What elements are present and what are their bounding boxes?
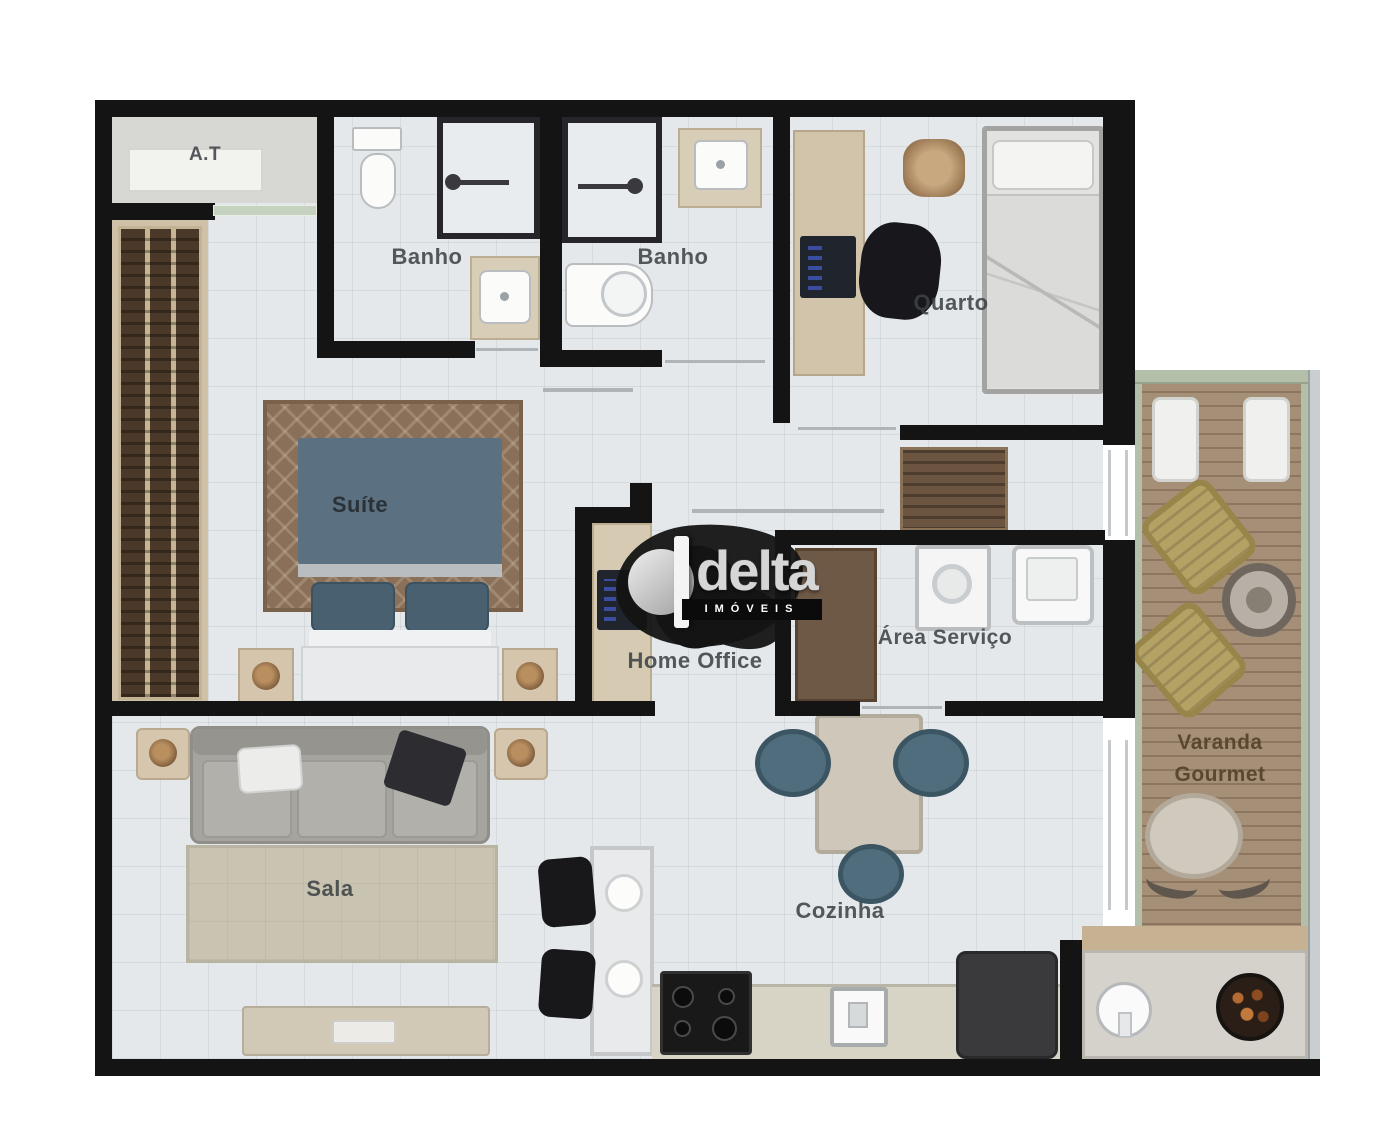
room-label-suite: Suíte	[285, 492, 435, 518]
stove-burner	[712, 1016, 737, 1041]
place-setting-icon	[605, 874, 643, 912]
varanda-top-band	[1135, 370, 1308, 384]
stove-burner	[718, 988, 735, 1005]
dining-chair	[893, 729, 969, 797]
wall-outer-top	[95, 100, 1135, 117]
plant-icon	[149, 739, 177, 767]
round-side-table-center	[1246, 587, 1272, 613]
barbecue-grill-icon	[1216, 973, 1284, 1041]
plant-icon	[252, 662, 280, 690]
shower-stall	[562, 117, 662, 243]
wardrobe	[118, 226, 202, 700]
bed-duvet	[301, 646, 499, 702]
door-quarto	[798, 427, 896, 430]
sofa-pillow	[236, 744, 303, 794]
wall-quarto-bottom	[900, 425, 1103, 440]
wall-servico-bottom-right	[945, 701, 1103, 716]
watermark-subtitle-strip: IMÓVEIS	[682, 599, 822, 620]
gourmet-bar-strip	[1082, 926, 1308, 950]
watermark-brand-text: delta	[696, 541, 856, 603]
sofa-cushion	[297, 760, 387, 838]
stove-burner	[672, 986, 694, 1008]
wall-suite-bottom	[95, 701, 655, 716]
tv-soundbar	[332, 1020, 396, 1044]
varanda-chair	[1152, 397, 1199, 482]
washing-machine-door	[932, 564, 972, 604]
kitchen-faucet-icon	[848, 1002, 868, 1028]
wall-outer-left	[95, 100, 112, 1076]
wall-banho1-bottom	[317, 341, 475, 358]
room-label-banho2: Banho	[598, 244, 748, 270]
door-suite	[543, 388, 633, 392]
wall-right-upper	[1103, 100, 1135, 445]
gourmet-faucet-icon	[1118, 1012, 1132, 1038]
dining-chair	[838, 844, 904, 904]
room-label-cozinha: Cozinha	[765, 898, 915, 924]
wall-right-mid	[1103, 540, 1135, 718]
plant-icon	[507, 739, 535, 767]
desk-monitor-icon	[800, 236, 856, 298]
sliding-door-kitchen	[1108, 740, 1128, 910]
stove-burner	[674, 1020, 691, 1037]
bar-stool-icon	[537, 856, 597, 928]
shower-head-icon	[578, 184, 633, 189]
wall-banho2-right	[773, 100, 790, 423]
room-label-quarto: Quarto	[876, 290, 1026, 316]
plant-basket-icon	[903, 139, 965, 197]
sala-rug	[186, 845, 498, 963]
door-banho2	[665, 360, 765, 363]
wall-right-lower	[1060, 940, 1082, 1059]
varanda-chair	[1243, 397, 1290, 482]
room-label-at: A.T	[150, 144, 260, 166]
varanda-rail	[1308, 370, 1320, 1059]
room-label-sala: Sala	[255, 876, 405, 902]
bar-stool-icon	[538, 948, 597, 1020]
room-label-banho1: Banho	[352, 244, 502, 270]
hall-shelf	[900, 447, 1008, 531]
toilet-bowl-icon	[360, 153, 396, 209]
plant-icon	[516, 662, 544, 690]
bed-pillow	[405, 582, 489, 632]
toilet-tank-icon	[352, 127, 402, 151]
laundry-tank-basin	[1026, 557, 1078, 601]
door-servico	[862, 706, 942, 709]
bed-pillow	[992, 140, 1094, 190]
dining-chair	[755, 729, 831, 797]
wall-servico-bottom-left	[775, 701, 860, 716]
door-hall	[692, 509, 884, 513]
wall-outer-bottom	[95, 1059, 1320, 1076]
wall-banho2-bottom	[540, 350, 662, 367]
round-dining-table	[1145, 793, 1243, 879]
sink-faucet-dot	[500, 292, 509, 301]
shower-knob-icon	[627, 178, 643, 194]
floorplan-page: { "title": "Apartment floor plan", "wate…	[0, 0, 1400, 1147]
place-setting-icon	[605, 960, 643, 998]
toilet-seat-icon	[601, 271, 647, 317]
fridge-icon	[956, 951, 1058, 1059]
room-label-home-office: Home Office	[600, 648, 790, 674]
wall-suite-right	[575, 507, 592, 716]
stove-icon	[660, 971, 752, 1055]
shower-knob-icon	[445, 174, 461, 190]
at-window	[213, 205, 317, 216]
wall-at-bottom	[95, 203, 215, 220]
bed-bench	[298, 564, 502, 577]
sliding-door-varanda	[1108, 450, 1128, 536]
wall-office-stub	[630, 483, 652, 523]
door-banho1	[476, 348, 538, 351]
wall-banho1-left	[317, 100, 334, 358]
wall-banho-divider	[540, 100, 562, 367]
room-label-area-servico: Área Serviço	[845, 626, 1045, 650]
room-label-varanda-line2: Gourmet	[1135, 763, 1305, 787]
sink-faucet-dot	[716, 160, 725, 169]
room-label-varanda-line1: Varanda	[1135, 731, 1305, 755]
bed-pillow	[311, 582, 395, 632]
